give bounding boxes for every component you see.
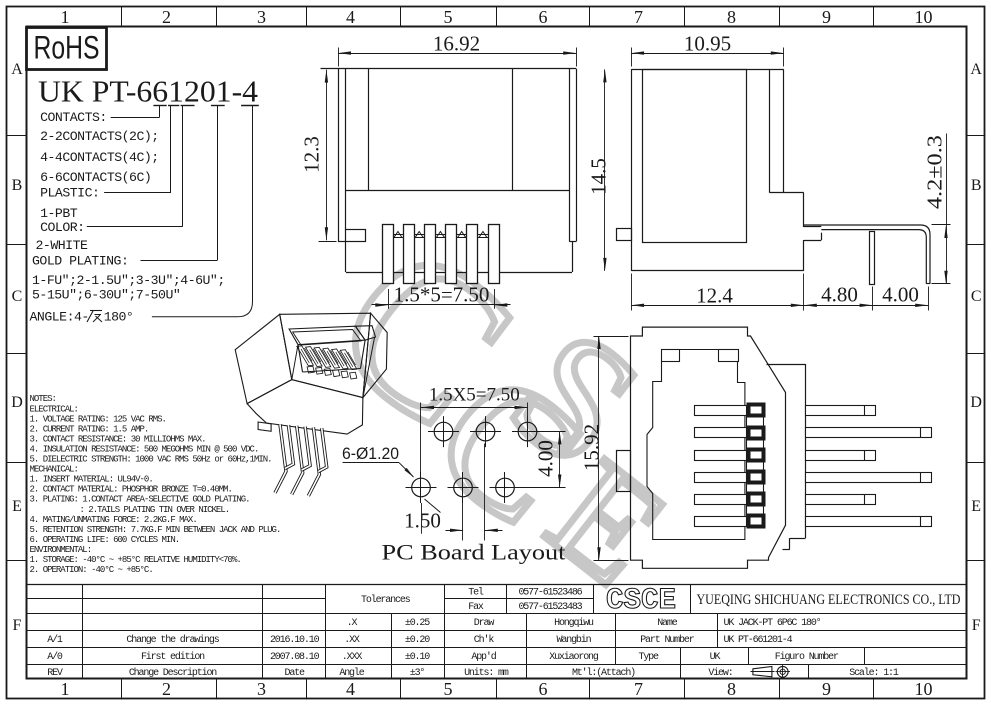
svg-text:C: C	[971, 288, 982, 305]
svg-text:4: 4	[346, 679, 355, 699]
svg-text:Hongqiwu: Hongqiwu	[554, 617, 594, 629]
svg-text:First edition: First edition	[141, 651, 205, 663]
svg-text:D: D	[970, 394, 982, 411]
svg-text:Units: mm: Units: mm	[464, 667, 509, 679]
svg-text:±0.20: ±0.20	[405, 635, 430, 646]
svg-text:0577-61523486: 0577-61523486	[518, 588, 582, 599]
svg-text:YUEQING SHICHUANG ELECTRONICS: YUEQING SHICHUANG ELECTRONICS CO., LTD	[697, 592, 961, 608]
svg-text:Name: Name	[657, 618, 678, 629]
svg-text:E: E	[971, 498, 981, 515]
svg-text:1. INSERT MATERIAL: UL94V-0.: 1. INSERT MATERIAL: UL94V-0.	[30, 475, 153, 485]
svg-text:F: F	[13, 617, 22, 634]
svg-text:Ch'k: Ch'k	[474, 634, 495, 646]
svg-text:3. PLATING: 1.CONTACT AREA-SEL: 3. PLATING: 1.CONTACT AREA-SELECTIVE GOL…	[30, 495, 250, 505]
svg-text:8: 8	[727, 679, 736, 699]
svg-text:5. DIELECTRIC STRENGTH: 1000 V: 5. DIELECTRIC STRENGTH: 1000 VAC RMS 50H…	[30, 455, 272, 465]
svg-text:View:: View:	[708, 667, 732, 679]
svg-text:5-15U″;6-30U″;7-50U″: 5-15U″;6-30U″;7-50U″	[32, 288, 180, 303]
svg-text:±3°: ±3°	[410, 667, 425, 679]
svg-text:A: A	[11, 61, 23, 78]
svg-text:7: 7	[634, 7, 643, 27]
svg-text:±0.25: ±0.25	[405, 618, 430, 629]
svg-text:2: 2	[162, 679, 171, 699]
svg-text:C: C	[12, 288, 23, 305]
svg-text:4.00: 4.00	[882, 283, 919, 307]
svg-text:App'd: App'd	[471, 651, 496, 663]
svg-text:CONTACTS:: CONTACTS:	[40, 110, 107, 125]
svg-text:4.2±0.3: 4.2±0.3	[923, 135, 947, 209]
svg-text:F: F	[972, 617, 981, 634]
svg-text:Xuxiaorong: Xuxiaorong	[549, 651, 599, 663]
svg-text:ELECTRICAL:: ELECTRICAL:	[30, 404, 78, 414]
svg-text:PLASTIC:: PLASTIC:	[40, 186, 99, 201]
svg-text:6. OPERATING LIFE: 600 CYCLES: 6. OPERATING LIFE: 600 CYCLES MIN.	[30, 535, 180, 545]
svg-text:4.80: 4.80	[821, 283, 858, 307]
svg-text:ANGLE:4-: ANGLE:4-	[30, 310, 89, 325]
svg-text:B: B	[971, 177, 982, 194]
svg-text:UK: UK	[710, 652, 721, 663]
svg-text:Wangbin: Wangbin	[557, 634, 592, 646]
svg-text:UK PT-661201-4: UK PT-661201-4	[38, 74, 258, 109]
svg-text:Date: Date	[284, 668, 305, 679]
svg-text:2: 2	[162, 7, 171, 27]
svg-text:: 2.TAILS PLATING TIN OVER NIC: : 2.TAILS PLATING TIN OVER NICKEL.	[80, 505, 230, 515]
svg-text:Scale: 1:1: Scale: 1:1	[849, 667, 899, 679]
svg-text:1. VOLTAGE RATING: 125 VAC RMS: 1. VOLTAGE RATING: 125 VAC RMS.	[30, 414, 166, 424]
svg-text:Part Number: Part Number	[640, 634, 695, 646]
svg-text:2. CURRENT RATING: 1.5 AMP.: 2. CURRENT RATING: 1.5 AMP.	[30, 424, 149, 434]
svg-text:10.95: 10.95	[684, 32, 731, 56]
svg-text:Figuro Number: Figuro Number	[775, 651, 839, 663]
svg-text:9: 9	[822, 7, 831, 27]
svg-text:4-4CONTACTS(4C);: 4-4CONTACTS(4C);	[40, 150, 159, 165]
svg-text:MECHANICAL:: MECHANICAL:	[30, 465, 78, 475]
svg-text:1: 1	[61, 7, 70, 27]
svg-text:Type: Type	[638, 652, 659, 663]
svg-text:Angle: Angle	[339, 667, 364, 679]
svg-text:12.4: 12.4	[696, 284, 733, 308]
svg-text:3. CONTACT RESISTANCE: 30 MILL: 3. CONTACT RESISTANCE: 30 MILLIOHMS MAX.	[30, 434, 206, 444]
svg-text:.XX: .XX	[344, 635, 360, 646]
svg-text:4.00: 4.00	[534, 440, 558, 477]
svg-text:A/1: A/1	[47, 634, 63, 646]
svg-text:Tel: Tel	[468, 587, 484, 599]
svg-text:4. MATING/UNMATING FORCE: 2.2K: 4. MATING/UNMATING FORCE: 2.2KG.F MAX.	[30, 515, 197, 525]
svg-text:UK PT-661201-4: UK PT-661201-4	[724, 635, 793, 646]
svg-text:5: 5	[444, 679, 453, 699]
svg-text:±0.10: ±0.10	[405, 652, 430, 663]
svg-text:6: 6	[539, 7, 548, 27]
svg-text:14.5: 14.5	[587, 158, 611, 195]
svg-text:8: 8	[727, 7, 736, 27]
svg-text:1.50: 1.50	[404, 509, 441, 533]
svg-text:ENVIRONMENTAL:: ENVIRONMENTAL:	[30, 545, 92, 555]
svg-text:GOLD PLATING:: GOLD PLATING:	[32, 254, 128, 269]
svg-text:5. RETENTION STRENGTH: 7.7KG.F: 5. RETENTION STRENGTH: 7.7KG.F MIN BETWE…	[30, 525, 281, 535]
svg-text:15.92: 15.92	[580, 424, 604, 471]
svg-text:6-6CONTACTS(6C): 6-6CONTACTS(6C)	[40, 170, 151, 185]
svg-text:Tolerances: Tolerances	[361, 594, 411, 606]
svg-text:16.92: 16.92	[433, 32, 480, 56]
svg-text:A: A	[970, 61, 982, 78]
svg-text:E: E	[12, 498, 22, 515]
svg-text:B: B	[12, 177, 23, 194]
svg-text:1.5X5=7.50: 1.5X5=7.50	[429, 385, 520, 406]
svg-text:.XXX: .XXX	[342, 652, 363, 663]
svg-text:1: 1	[61, 679, 70, 699]
svg-text:5: 5	[444, 7, 453, 27]
svg-text:3: 3	[257, 7, 266, 27]
svg-text:12.3: 12.3	[300, 136, 324, 173]
svg-text:Draw: Draw	[474, 618, 495, 629]
svg-text:2016.10.10: 2016.10.10	[270, 635, 320, 646]
svg-text:D: D	[11, 394, 23, 411]
svg-text:PC Board Layout: PC Board Layout	[382, 540, 566, 565]
svg-text:6: 6	[539, 679, 548, 699]
svg-text:7: 7	[634, 679, 643, 699]
svg-text:10: 10	[915, 679, 933, 699]
svg-text:1-PBT: 1-PBT	[40, 206, 78, 221]
svg-text:RoHS: RoHS	[34, 30, 100, 66]
svg-text:Change Description: Change Description	[129, 667, 217, 679]
svg-text:4. INSULATION RESISTANCE: 500: 4. INSULATION RESISTANCE: 500 MEGOHMS MI…	[30, 444, 259, 454]
svg-text:2. CONTACT MATERIAL: PHOSPHOR: 2. CONTACT MATERIAL: PHOSPHOR BRONZE T=0…	[30, 485, 232, 495]
svg-text:2-WHITE: 2-WHITE	[36, 238, 88, 253]
svg-text:1. STORAGE: -40°C ~ +85°C RELA: 1. STORAGE: -40°C ~ +85°C RELATIVE HUMID…	[30, 555, 241, 565]
svg-text:6-Ø1.20: 6-Ø1.20	[342, 445, 399, 463]
svg-text:Mt'l:(Attach): Mt'l:(Attach)	[572, 667, 635, 679]
svg-text:2007.08.10: 2007.08.10	[270, 652, 320, 663]
svg-text:NOTES:: NOTES:	[30, 394, 56, 404]
svg-text:0577-61523483: 0577-61523483	[518, 602, 582, 613]
svg-text:1.5*5=7.50: 1.5*5=7.50	[394, 283, 490, 307]
svg-text:9: 9	[822, 679, 831, 699]
svg-text:CSCE: CSCE	[606, 584, 676, 618]
svg-text:2-2CONTACTS(2C);: 2-2CONTACTS(2C);	[40, 129, 159, 144]
svg-text:Change the drawings: Change the drawings	[126, 634, 219, 646]
svg-text:2. OPERATION: -40°C ~ +85°C.: 2. OPERATION: -40°C ~ +85°C.	[30, 565, 153, 575]
svg-text:.X: .X	[347, 618, 358, 629]
svg-text:1-FU″;2-1.5U″;3-3U″;4-6U″;: 1-FU″;2-1.5U″;3-3U″;4-6U″;	[32, 273, 225, 288]
svg-text:COLOR:: COLOR:	[40, 220, 84, 235]
svg-text:4: 4	[346, 7, 355, 27]
svg-text:Fax: Fax	[468, 602, 484, 613]
svg-text:A/0: A/0	[47, 651, 63, 663]
svg-text:REV: REV	[47, 668, 63, 679]
svg-text:180°: 180°	[104, 310, 134, 325]
svg-text:3: 3	[257, 679, 266, 699]
svg-text:10: 10	[915, 7, 933, 27]
svg-text:UK JACK-PT 6P6C 180°: UK JACK-PT 6P6C 180°	[724, 617, 821, 629]
